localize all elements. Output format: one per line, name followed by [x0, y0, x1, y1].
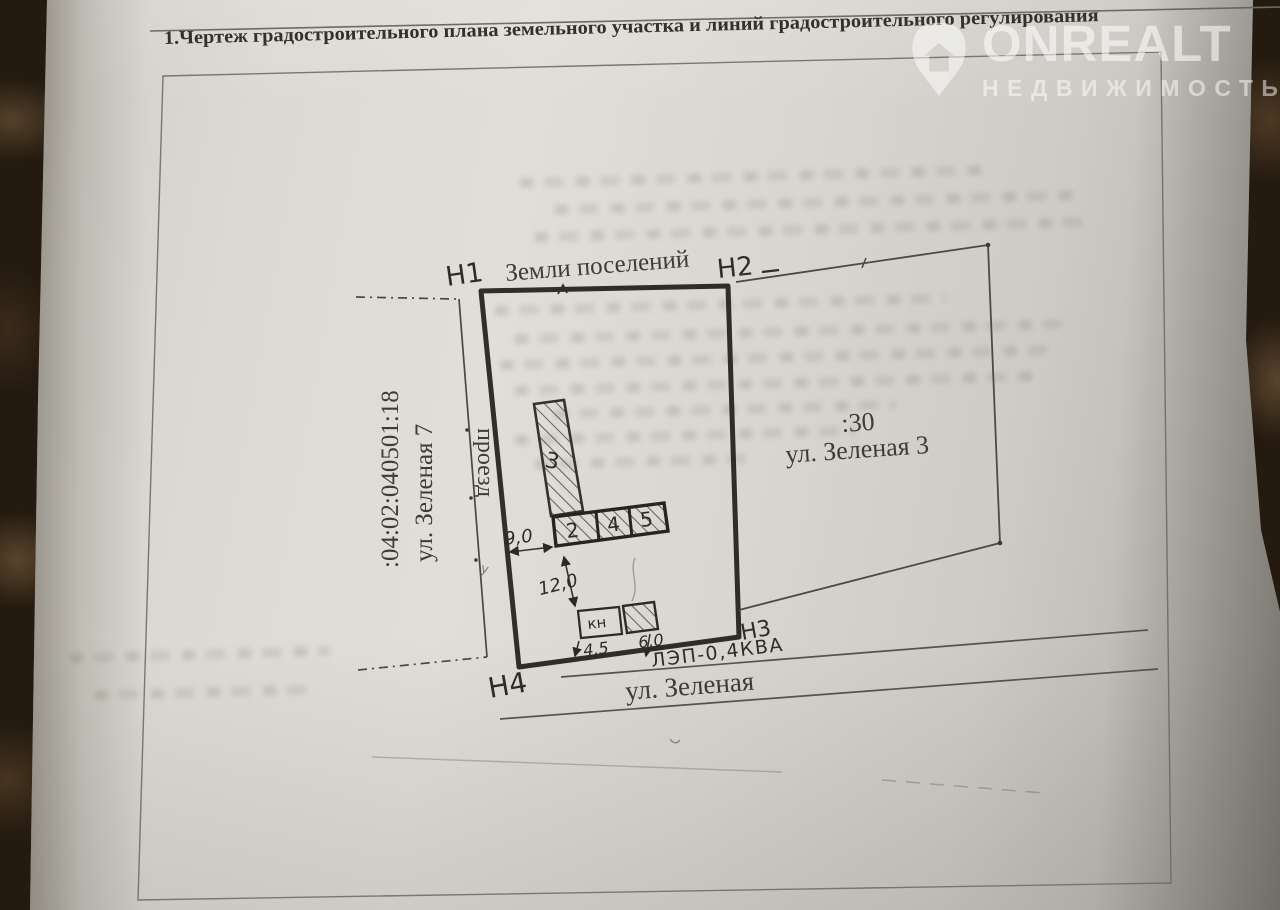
survey-dot [986, 243, 991, 248]
shed-kn-label: кн [587, 613, 608, 633]
site-plan-drawing: 1.Чертеж градостроительного плана земель… [0, 0, 1280, 910]
drawing-frame [138, 52, 1171, 900]
street-label: ул. Зеленая [624, 666, 755, 706]
left-parcel-cadastral-number: :04:02:040501:18 [377, 390, 404, 568]
survey-dot [465, 428, 469, 432]
pen-tick [670, 739, 680, 743]
dimension-9-label: 9,0 [503, 526, 534, 550]
survey-dot [474, 558, 478, 562]
cadastral-dashed-line [358, 657, 487, 670]
faint-pencil-line [372, 757, 782, 772]
land-category-label: Земли поселений [504, 246, 690, 287]
main-parcel-boundary [481, 286, 739, 667]
document-photo: 1.Чертеж градостроительного плана земель… [0, 0, 1280, 910]
boundary-point-n1-label: Н1 [444, 257, 485, 293]
boundary-point-n4-label: Н4 [485, 666, 529, 705]
right-parcel-address: ул. Зеленая 3 [784, 430, 930, 469]
n2-dash [762, 270, 779, 272]
dimension-45-label: 4,5 [582, 638, 610, 660]
pencil-mark: у [479, 561, 491, 578]
passage-label: проезд [472, 428, 498, 497]
street-line [500, 669, 1158, 719]
survey-dot [998, 541, 1003, 546]
boundary-point-n2-label: Н2 [716, 251, 755, 285]
dimension-12-label: 12,0 [536, 570, 580, 600]
pen-scribble [632, 558, 635, 601]
shed-hatched [623, 602, 658, 633]
dimension-arrow-45 [575, 641, 579, 656]
page-title: 1.Чертеж градостроительного плана земель… [164, 5, 1099, 49]
dimension-60-label: 6,0 [637, 630, 665, 652]
cadastral-dashed-line [356, 297, 457, 299]
faint-dashed-line [882, 780, 1044, 793]
left-parcel-address: ул. Зеленая 7 [411, 424, 438, 562]
